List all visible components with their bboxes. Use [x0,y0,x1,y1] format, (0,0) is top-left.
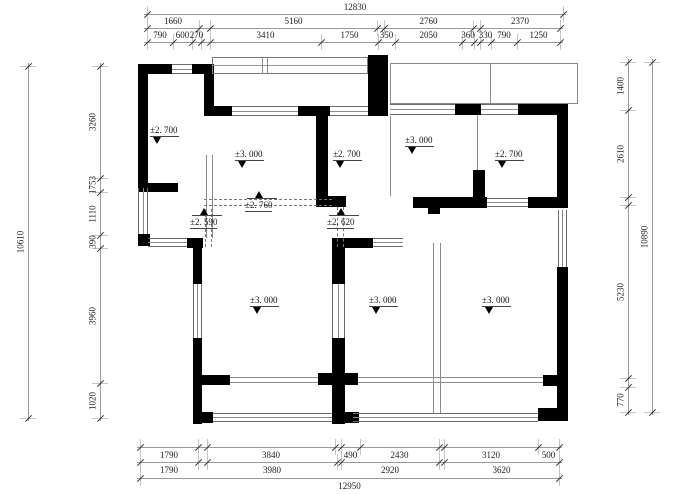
dimension-chain-bottom-overall [137,478,562,479]
wall-segment [138,64,148,188]
dimension-label: 500 [542,451,556,460]
bay-window-band [212,57,368,74]
wall-segment [345,238,373,248]
thin-line [433,243,434,413]
thin-line [440,243,441,413]
dimension-label: 2050 [420,31,438,40]
dimension-label: 270 [190,31,204,40]
dimension-label: 790 [153,31,167,40]
level-marker-triangle-icon [408,147,416,154]
dimension-label: 770 [617,393,626,407]
level-marker-label: ±2. 760 [245,201,272,212]
wall-segment [557,103,568,208]
wall-segment [473,170,485,208]
dimension-label: 3840 [262,451,280,460]
level-marker-line [247,198,277,199]
level-marker-triangle-icon [238,161,246,168]
dimension-label: 330 [479,31,493,40]
dimension-label: 1790 [160,451,178,460]
dimension-label: 5230 [617,283,626,301]
window [373,238,403,247]
dimension-chain-right-outer [652,59,653,415]
thin-line [230,382,318,383]
wall-segment [204,106,232,116]
dimension-chain-bottom-detail [137,447,562,448]
dimension-label: 3410 [257,31,275,40]
level-marker-label: ±2. 590 [190,218,217,229]
level-marker-triangle-icon [485,307,493,314]
wall-segment [368,55,388,116]
level-marker-triangle-icon [200,208,208,215]
dimension-chain-top-groups [144,28,563,29]
level-marker-line [329,215,359,216]
dimension-label: 3620 [493,466,511,475]
dimension-label: 1020 [89,392,98,410]
thin-line [358,377,543,378]
dimension-label: 3960 [89,307,98,325]
level-marker-label: ±2. 700 [333,150,362,161]
dimension-label: 2370 [511,17,529,26]
level-marker-label: ±3. 000 [482,296,511,307]
level-marker-triangle-icon [372,307,380,314]
thin-line [262,57,263,74]
thin-line [267,57,268,74]
dimension-label: 790 [497,31,511,40]
dimension-label: 1753 [89,176,98,194]
dimension-label: 12950 [338,482,361,491]
dimension-label: 2610 [617,145,626,163]
window [390,104,455,115]
wall-segment [193,238,202,284]
level-marker-triangle-icon [153,137,161,144]
terrace-outline [390,63,578,104]
wall-segment [455,103,481,115]
dimension-label: 2430 [391,451,409,460]
level-marker-triangle-icon [253,307,261,314]
level-marker-triangle-icon [336,161,344,168]
dimension-label: 10610 [17,231,26,254]
dimension-label: 1250 [530,31,548,40]
wall-segment [318,373,358,385]
window [138,188,148,234]
window [487,198,528,207]
level-marker-label: ±3. 000 [405,136,434,147]
thin-line [490,63,491,104]
dimension-label: 5160 [285,17,303,26]
dimension-chain-left-outer [28,63,29,421]
window [193,284,202,338]
dimension-label: 3980 [263,466,281,475]
window [148,238,187,247]
level-marker-label: ±3. 000 [235,150,264,161]
dimension-chain-right-inner [628,59,629,415]
window [481,104,518,115]
window [332,284,345,338]
window [172,64,192,74]
dimension-label: 3120 [482,451,500,460]
dimension-label: 490 [344,451,358,460]
dimension-label: 1790 [160,466,178,475]
level-marker-triangle-icon [337,208,345,215]
dimension-chain-top-detail [144,42,563,43]
dimension-label: 1660 [164,17,182,26]
wall-segment [528,197,568,208]
window [232,106,298,116]
level-marker-label: ±3. 000 [250,296,279,307]
dimension-chain-left-inner [100,63,101,421]
window [213,413,332,422]
wall-segment [197,412,213,423]
wall-segment [557,267,568,419]
wall-segment [428,208,440,214]
wall-segment [316,110,328,207]
floor-plan: 1283016605160276023707906002703410175035… [0,0,700,495]
dimension-label: 2760 [420,17,438,26]
window [330,106,368,116]
dimension-label: 390 [89,235,98,249]
window [353,413,538,422]
dimension-label: 360 [461,31,475,40]
dimension-label: 600 [176,31,190,40]
wall-segment [202,375,230,385]
thin-line [358,382,543,383]
dimension-label: 2920 [381,466,399,475]
level-marker-triangle-icon [498,161,506,168]
dimension-label: 12830 [344,3,367,12]
dimension-label: 1110 [89,205,98,222]
level-marker-label: ±2. 700 [150,126,179,137]
level-marker-triangle-icon [255,191,263,198]
thin-line [390,116,391,196]
dimension-label: 350 [380,31,394,40]
thin-line [230,377,318,378]
dimension-chain-top-overall [144,14,566,15]
dimension-label: 3260 [89,113,98,131]
level-marker-label: ±2. 700 [495,150,524,161]
dimension-label: 1400 [617,77,626,95]
level-marker-label: ±2. 620 [327,218,354,229]
dimension-chain-bottom-groups [137,462,562,463]
wall-segment [138,64,172,74]
dimension-label: 10890 [641,226,650,249]
level-marker-line [192,215,222,216]
dimension-label: 1750 [341,31,359,40]
wall-segment [543,375,557,386]
thin-line [477,115,478,170]
window [558,210,567,267]
level-marker-label: ±3. 000 [369,296,398,307]
